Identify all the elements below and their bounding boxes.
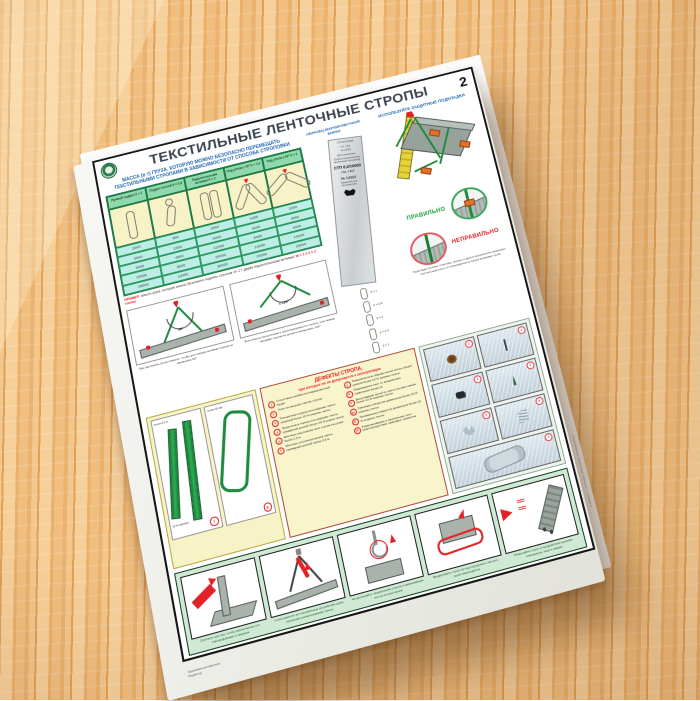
hot-beam [538, 484, 563, 532]
load-block [364, 557, 404, 583]
defect-number: 5 [275, 437, 283, 446]
defect-mark [482, 443, 527, 475]
falling-slab [191, 584, 216, 610]
hook-icon [295, 548, 301, 555]
defect-number: 4 [273, 428, 281, 437]
defect-number: 10 [349, 408, 357, 417]
tag-line: Товарный знак изготовителя [335, 179, 364, 188]
k-factor-label: К = 2 [376, 315, 383, 320]
credits: Художник-составитель Редактор [187, 661, 221, 679]
angle-value: 90° [178, 327, 184, 332]
photo-number-badge: 4 [526, 361, 535, 370]
warning-arrow-icon [304, 560, 312, 570]
defect-number: 11 [351, 417, 359, 426]
heat-waves-icon: ≈≈≈≈ [516, 498, 526, 513]
dimension-label: 10 % ширины [172, 521, 190, 529]
angle-value: ≤ 120° [279, 300, 290, 306]
defect-number: 8 [345, 390, 353, 399]
defect-mark [511, 375, 516, 385]
green-webbing [168, 428, 181, 519]
defect-number-badge: 8 [263, 502, 273, 513]
corner-pad [459, 140, 470, 148]
prohibition-panel-3: Не допускайте защемления стропа и навеши… [337, 515, 427, 606]
correct-label: ПРАВИЛЬНО [406, 206, 446, 221]
defect-number: 6 [277, 446, 285, 455]
green-webbing [182, 420, 203, 521]
defect-number: 1 [268, 401, 276, 410]
defect-number: 9 [347, 399, 355, 408]
sling-loop-icon [372, 341, 381, 354]
defect-number: 2 [269, 410, 277, 419]
sling-loop-icon [369, 327, 378, 340]
defect-number-badge: 7 [209, 516, 219, 527]
k-factor-label: К = 1,4 [379, 328, 389, 334]
spark-drop [550, 530, 553, 534]
defect-mark [455, 390, 465, 398]
defect-mark [517, 409, 530, 423]
photo-number-badge: 7 [544, 433, 553, 442]
photo-number-badge: 1 [464, 340, 473, 349]
defect-number: 3 [271, 419, 279, 428]
dimension-label: более 0,5 м [153, 420, 168, 427]
k-factor-label: К = 0,8 [373, 301, 383, 307]
prohibition-panel-2: Строп крепите за специальные устройства … [259, 536, 348, 628]
sling-loop-icon [360, 287, 369, 300]
manufacturer-trademark-icon [344, 188, 356, 196]
k-factor-label: К = 1 [370, 289, 377, 294]
warning-arrow-icon [388, 533, 396, 543]
corner-pad [429, 129, 440, 137]
capacity-section: МАССА (в т) ГРУЗА, КОТОРУЮ МОЖНО БЕЗОПАС… [103, 134, 348, 414]
photo-number-badge: 2 [517, 326, 526, 335]
prohibition-panel-4: Выдергивать строп из-под опущенного на н… [414, 494, 504, 585]
dimension-label: более 50 мм [207, 406, 223, 413]
organization-logo-icon [100, 161, 119, 180]
corner-pad [420, 167, 432, 175]
warning-ring-icon [368, 538, 390, 561]
sling-loop-icon [363, 301, 372, 314]
prohibition-panel-5: ≈≈≈≈ Оберегайте строп от воздействия выс… [491, 474, 581, 564]
photo-number-badge: 3 [473, 375, 482, 384]
defect-mark [446, 353, 458, 364]
prohibition-panel-1: Стропьте груз так, чтобы исключалось его… [180, 557, 269, 650]
defect-mark [462, 424, 476, 437]
defect-mark [503, 339, 508, 351]
support-base [210, 600, 257, 627]
k-factor-label: К = 1 [382, 342, 389, 348]
marking-tag: СТП 8,0/10000г/п, т 8,0№ 14323Дата испыт… [328, 136, 377, 287]
defect-number: 12 [353, 426, 361, 435]
photo-number-badge: 5 [481, 411, 490, 420]
warning-arrow-icon [208, 578, 217, 586]
torch-icon [500, 506, 514, 521]
k-factor-item: К = 1 [372, 338, 393, 354]
spark-drop [543, 527, 546, 531]
photo-number-badge: 6 [535, 397, 544, 406]
defect-number: 7 [343, 381, 351, 390]
poster-number: 2 [458, 73, 471, 90]
incorrect-label: НЕПРАВИЛЬНО [451, 228, 499, 246]
green-webbing-loop [219, 410, 251, 492]
sling-loop-icon [366, 314, 375, 327]
